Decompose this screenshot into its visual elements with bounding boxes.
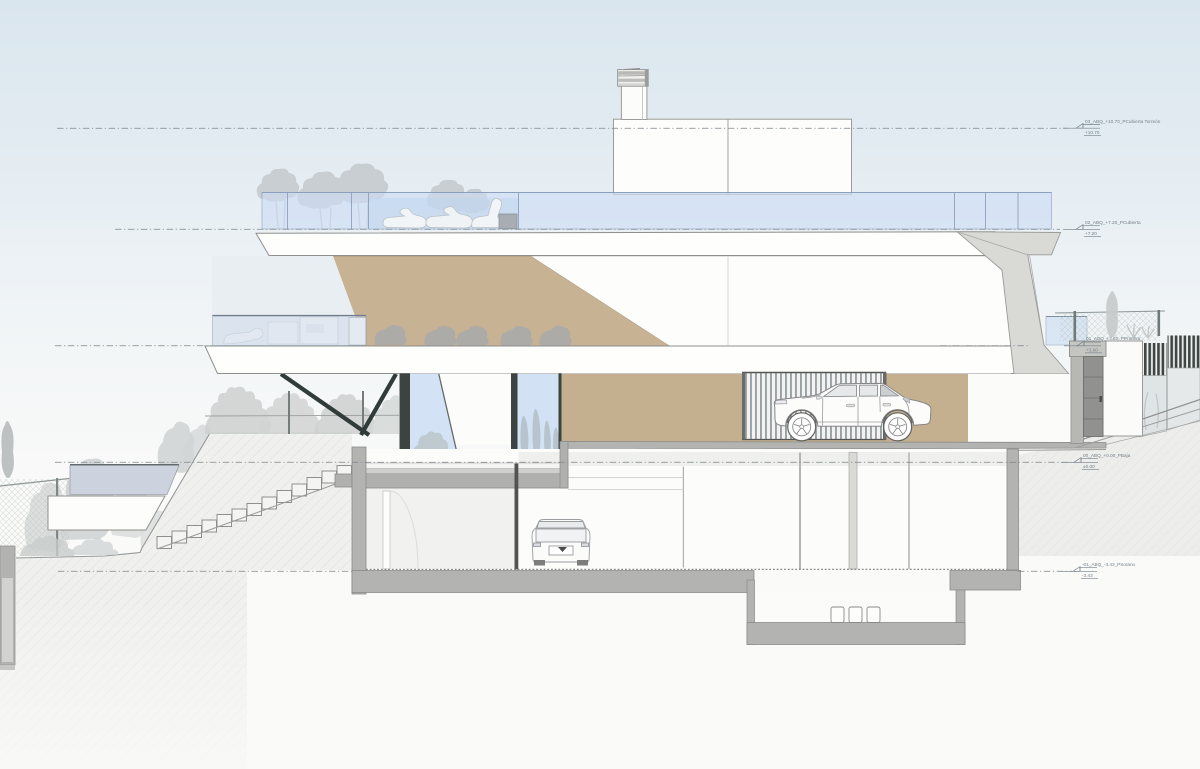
svg-text:+7.20: +7.20	[1085, 231, 1097, 236]
svg-text:02_ABQ_+7.20_PCubierta: 02_ABQ_+7.20_PCubierta	[1085, 220, 1141, 225]
svg-text:03_ABQ_+10.70_PCubierta Torreó: 03_ABQ_+10.70_PCubierta Torreón	[1085, 119, 1161, 124]
svg-text:+3.60: +3.60	[1086, 348, 1098, 353]
svg-text:+10.70: +10.70	[1085, 130, 1100, 135]
svg-text:-01_ABQ_-3.43_PSotano: -01_ABQ_-3.43_PSotano	[1082, 562, 1136, 567]
svg-text:-3.43: -3.43	[1082, 573, 1093, 578]
svg-text:00_ABQ_+0.00_PBaja: 00_ABQ_+0.00_PBaja	[1083, 453, 1131, 458]
svg-text:±0.00: ±0.00	[1083, 464, 1095, 469]
svg-text:01_ABQ_+3.60_PPrimera: 01_ABQ_+3.60_PPrimera	[1086, 336, 1141, 341]
